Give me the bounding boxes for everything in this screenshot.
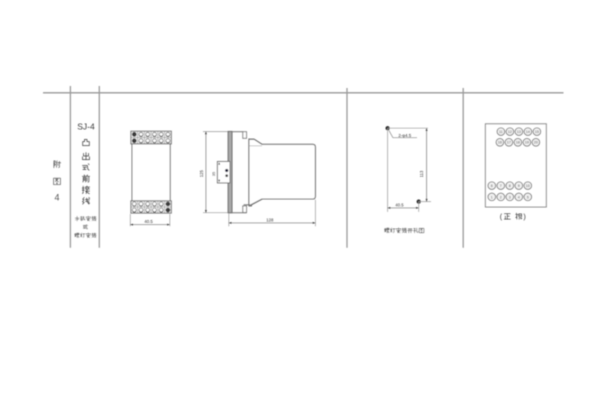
svg-text:4: 4 — [54, 193, 59, 203]
svg-text:): ) — [523, 212, 525, 221]
svg-text:9: 9 — [518, 184, 520, 188]
svg-text:40.5: 40.5 — [395, 202, 404, 207]
svg-text:2-φ4.5: 2-φ4.5 — [398, 133, 411, 138]
svg-text:7: 7 — [500, 184, 502, 188]
svg-text:16: 16 — [498, 141, 502, 145]
svg-text:40.5: 40.5 — [144, 219, 153, 224]
svg-text:6: 6 — [491, 184, 493, 188]
svg-text:3: 3 — [509, 195, 511, 199]
svg-text:2: 2 — [500, 195, 502, 199]
svg-text:10: 10 — [526, 184, 530, 188]
svg-text:8: 8 — [509, 184, 511, 188]
svg-text:4: 4 — [518, 195, 520, 199]
svg-text:20: 20 — [534, 141, 538, 145]
svg-text:18: 18 — [516, 141, 520, 145]
svg-text:13: 13 — [517, 130, 521, 134]
svg-text:14: 14 — [526, 130, 530, 134]
svg-text:15: 15 — [535, 130, 539, 134]
svg-text:SJ-4: SJ-4 — [77, 122, 95, 132]
svg-text:128: 128 — [266, 217, 274, 222]
svg-text:17: 17 — [507, 141, 511, 145]
svg-text:113: 113 — [419, 170, 424, 177]
svg-text:35: 35 — [212, 172, 216, 176]
svg-text:12: 12 — [508, 130, 512, 134]
svg-text:11: 11 — [499, 130, 503, 134]
svg-text:125: 125 — [199, 170, 204, 178]
svg-text:5: 5 — [527, 195, 529, 199]
svg-text:(: ( — [500, 212, 503, 221]
svg-text:1: 1 — [491, 195, 493, 199]
svg-text:19: 19 — [525, 141, 529, 145]
